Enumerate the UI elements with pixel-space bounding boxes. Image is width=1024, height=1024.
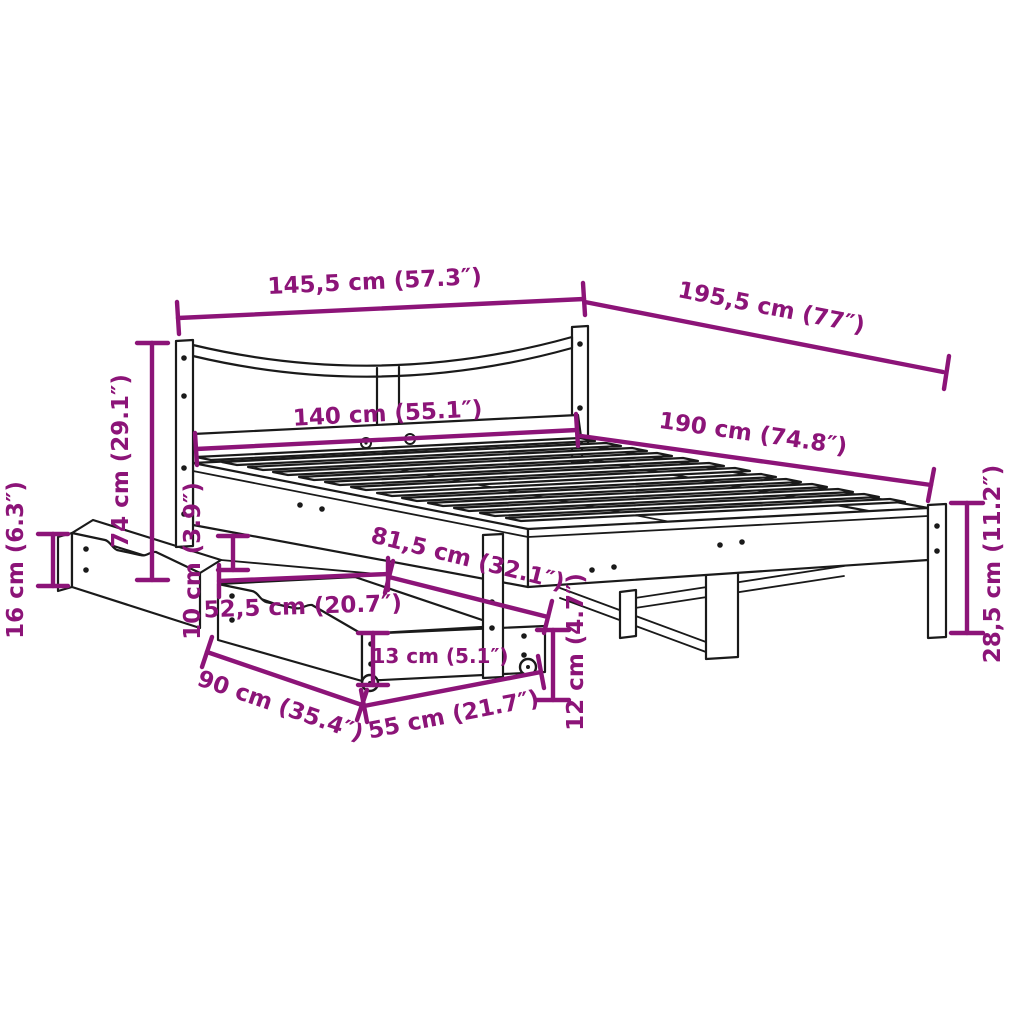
- screw-dot: [934, 548, 940, 554]
- screw-dot: [83, 546, 89, 552]
- screw-dot: [181, 355, 187, 361]
- screw-dot: [83, 567, 89, 573]
- screw-dot: [934, 523, 940, 529]
- screw-dot: [577, 405, 583, 411]
- screw-dot: [319, 506, 325, 512]
- screw-dot: [739, 539, 745, 545]
- center-leg-small: [620, 590, 636, 638]
- dimension-tick: [944, 356, 949, 389]
- screw-dot: [521, 652, 527, 658]
- screw-dot: [181, 465, 187, 471]
- dimension-label: 12 cm (4.7″): [563, 573, 589, 731]
- screw-dot: [717, 542, 723, 548]
- screw-dot: [181, 393, 187, 399]
- dimension-tick: [195, 433, 197, 465]
- dimension-label: 74 cm (29.1″): [108, 374, 134, 548]
- screw-dot: [577, 341, 583, 347]
- dimension-label: 10 cm (3.9″): [180, 482, 206, 640]
- dimension-frame-outer-length: 195,5 cm (77″): [585, 277, 949, 389]
- dimension-label: 55 cm (21.7″): [366, 686, 541, 745]
- drawer-end-panel: [58, 533, 72, 591]
- dimension-label: 16 cm (6.3″): [3, 481, 29, 639]
- screw-dot: [521, 633, 527, 639]
- screw-dot: [589, 567, 595, 573]
- dimension-label: 145,5 cm (57.3″): [267, 264, 482, 300]
- drawer-back-wall-edge: [221, 560, 388, 575]
- screw-dot: [611, 564, 617, 570]
- dimension-tick: [576, 414, 578, 446]
- bed-dimension-diagram: 145,5 cm (57.3″) 195,5 cm (77″) 140 cm (…: [0, 0, 1024, 1024]
- dimension-tick: [177, 302, 179, 334]
- screw-dot: [489, 625, 495, 631]
- dimension-footboard-frame-height: 28,5 cm (11.2″): [951, 465, 1006, 663]
- dimension-tick: [928, 469, 934, 501]
- dimension-tick: [583, 283, 585, 315]
- dimension-headboard-outer-width: 145,5 cm (57.3″): [177, 264, 585, 334]
- screw-dot: [297, 502, 303, 508]
- caster-hub: [526, 665, 530, 669]
- dimension-label: 13 cm (5.1″): [371, 644, 508, 668]
- headboard-curved-top-rail: [193, 337, 572, 377]
- dimension-label: 195,5 cm (77″): [676, 277, 867, 339]
- dimension-label: 28,5 cm (11.2″): [980, 465, 1006, 663]
- diagram-canvas: 145,5 cm (57.3″) 195,5 cm (77″) 140 cm (…: [0, 0, 1024, 1024]
